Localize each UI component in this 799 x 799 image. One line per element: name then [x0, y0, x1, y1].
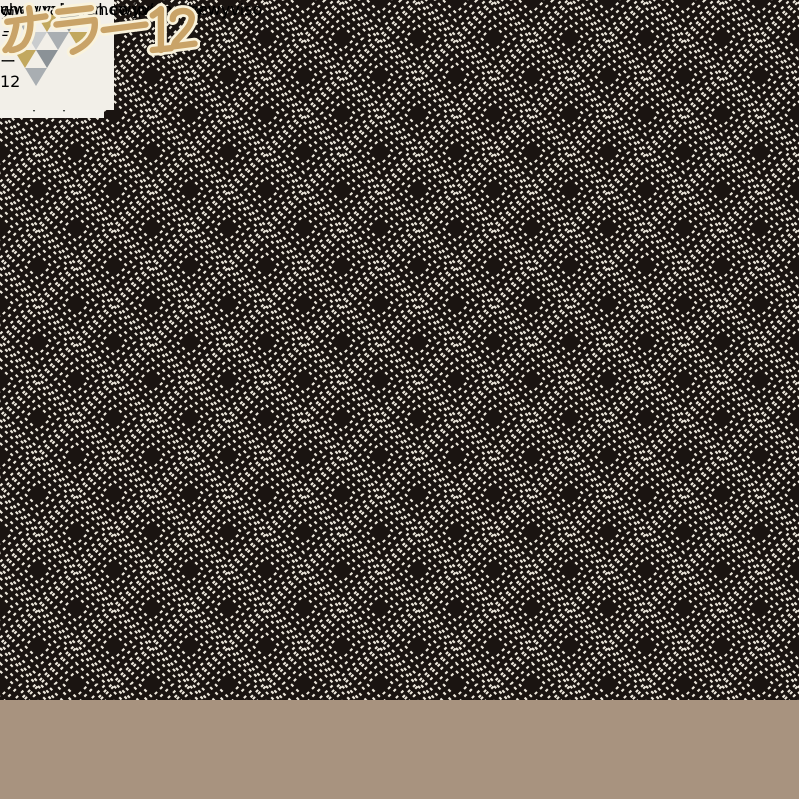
rug-pattern: [0, 0, 799, 700]
product-photo-living-room: IMAGINE IMAGINE THE HUNGER: [0, 0, 799, 799]
color-label-lettering: [0, 0, 200, 60]
